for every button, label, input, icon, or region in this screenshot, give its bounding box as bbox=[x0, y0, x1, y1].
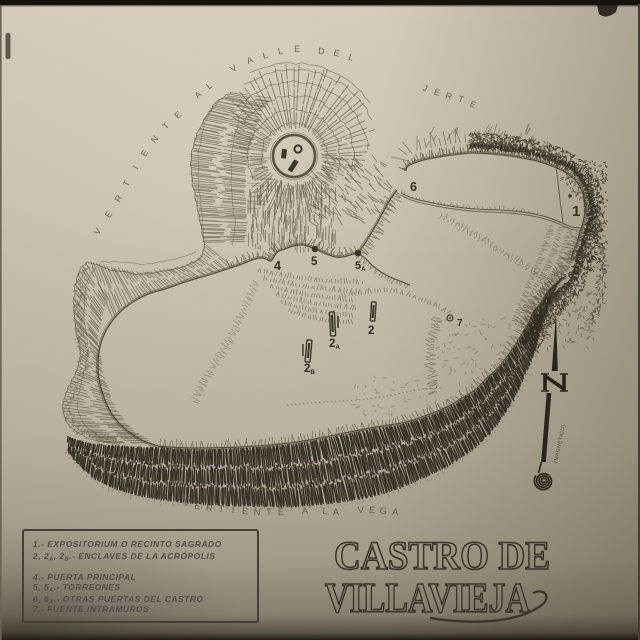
svg-text:1.- EXPOSITORIUM O RECINTO SAG: 1.- EXPOSITORIUM O RECINTO SAGRADO bbox=[33, 539, 222, 549]
svg-text:7: 7 bbox=[457, 318, 463, 329]
svg-text:6: 6 bbox=[410, 180, 417, 194]
svg-text:D: D bbox=[318, 46, 325, 57]
svg-text:E: E bbox=[242, 506, 249, 517]
svg-text:5: 5 bbox=[311, 256, 318, 268]
svg-text:4.- PUERTA PRINCIPAL: 4.- PUERTA PRINCIPAL bbox=[32, 572, 136, 582]
svg-text:E: E bbox=[278, 507, 285, 517]
svg-text:L: L bbox=[322, 506, 328, 516]
svg-text:7.- FUENTE INTRAMUROS: 7.- FUENTE INTRAMUROS bbox=[33, 604, 149, 614]
svg-text:2, 2A, 2B.- ENCLAVES DE LA ACR: 2, 2A, 2B.- ENCLAVES DE LA ACRÓPOLIS bbox=[32, 550, 215, 563]
svg-text:1: 1 bbox=[572, 203, 580, 220]
svg-text:4: 4 bbox=[274, 259, 281, 273]
svg-text:N: N bbox=[254, 507, 261, 517]
svg-text:A: A bbox=[302, 506, 309, 516]
svg-text:CASTRO DE: CASTRO DE bbox=[334, 533, 550, 578]
svg-text:T: T bbox=[266, 507, 272, 517]
svg-text:5, 5A.- TORREONES: 5, 5A.- TORREONES bbox=[33, 582, 121, 594]
svg-text:G: G bbox=[379, 506, 387, 517]
svg-text:A: A bbox=[333, 507, 340, 517]
svg-text:VILLAVIEJA: VILLAVIEJA bbox=[325, 576, 531, 622]
svg-text:E: E bbox=[294, 44, 300, 54]
svg-text:E: E bbox=[369, 505, 376, 515]
svg-text:2: 2 bbox=[368, 325, 374, 337]
